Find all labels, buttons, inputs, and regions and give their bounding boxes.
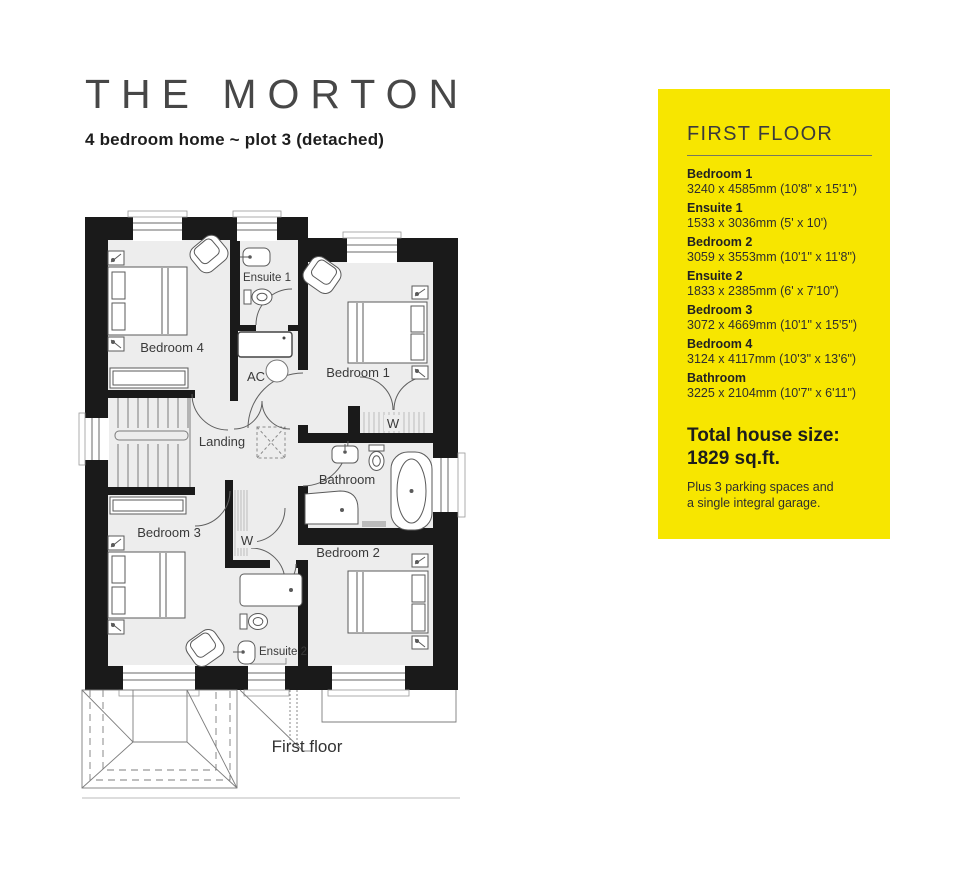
window-ensuite2 bbox=[244, 665, 289, 696]
room-entry-name: Bedroom 4 bbox=[687, 337, 872, 352]
room-entry-name: Ensuite 1 bbox=[687, 201, 872, 216]
label-ensuite1: Ensuite 1 bbox=[243, 272, 291, 284]
room-entry: Ensuite 1 1533 x 3036mm (5' x 10') bbox=[687, 201, 872, 231]
room-entry-dims: 3124 x 4117mm (10'3" x 13'6") bbox=[687, 352, 872, 367]
parking-note: Plus 3 parking spaces and a single integ… bbox=[687, 479, 872, 511]
label-bedroom1: Bedroom 1 bbox=[326, 365, 390, 380]
total-label: Total house size: bbox=[687, 424, 872, 447]
room-entry-dims: 3240 x 4585mm (10'8" x 15'1") bbox=[687, 182, 872, 197]
room-entry-dims: 3059 x 3553mm (10'1" x 11'8") bbox=[687, 250, 872, 265]
water-cylinder bbox=[238, 332, 292, 357]
toilet bbox=[240, 614, 268, 630]
label-ensuite2: Ensuite 2 bbox=[259, 646, 307, 658]
room-entry-name: Bedroom 2 bbox=[687, 235, 872, 250]
room-entry-name: Bedroom 3 bbox=[687, 303, 872, 318]
toilet bbox=[369, 445, 384, 471]
room-dimension-list: Bedroom 1 3240 x 4585mm (10'8" x 15'1") … bbox=[687, 167, 872, 401]
window-bedroom4 bbox=[128, 211, 187, 241]
page-header: THE MORTON 4 bedroom home ~ plot 3 (deta… bbox=[85, 70, 469, 150]
plan-caption: First floor bbox=[272, 737, 343, 756]
panel-heading: FIRST FLOOR bbox=[687, 123, 872, 146]
room-entry: Bedroom 1 3240 x 4585mm (10'8" x 15'1") bbox=[687, 167, 872, 197]
info-panel: FIRST FLOOR Bedroom 1 3240 x 4585mm (10'… bbox=[658, 89, 890, 539]
label-bedroom4: Bedroom 4 bbox=[140, 340, 204, 355]
parking-note-line1: Plus 3 parking spaces and bbox=[687, 479, 872, 495]
room-entry-name: Ensuite 2 bbox=[687, 269, 872, 284]
label-bathroom: Bathroom bbox=[319, 472, 375, 487]
room-entry-dims: 3225 x 2104mm (10'7" x 6'11") bbox=[687, 386, 872, 401]
window-bathroom bbox=[432, 453, 465, 517]
window-ensuite1 bbox=[233, 211, 281, 241]
parking-note-line2: a single integral garage. bbox=[687, 495, 872, 511]
radiator bbox=[362, 521, 386, 527]
room-entry-dims: 3072 x 4669mm (10'1" x 15'5") bbox=[687, 318, 872, 333]
room-entry: Bathroom 3225 x 2104mm (10'7" x 6'11") bbox=[687, 371, 872, 401]
total-house-size: Total house size: 1829 sq.ft. bbox=[687, 424, 872, 470]
room-entry: Ensuite 2 1833 x 2385mm (6' x 7'10") bbox=[687, 269, 872, 299]
total-value: 1829 sq.ft. bbox=[687, 447, 872, 470]
room-entry-name: Bedroom 1 bbox=[687, 167, 872, 182]
tank-circle bbox=[266, 360, 288, 382]
panel-divider bbox=[687, 155, 872, 156]
page-title: THE MORTON bbox=[85, 70, 469, 118]
shower bbox=[305, 491, 358, 524]
label-landing: Landing bbox=[199, 434, 245, 449]
floor-plan: W W bbox=[55, 190, 475, 825]
floor-plan-svg: W W bbox=[55, 190, 475, 820]
label-ac: AC bbox=[247, 369, 265, 384]
toilet bbox=[244, 289, 272, 305]
room-entry-dims: 1533 x 3036mm (5' x 10') bbox=[687, 216, 872, 231]
window-bedroom2 bbox=[328, 665, 409, 696]
wardrobe1-label: W bbox=[387, 416, 400, 431]
bathtub bbox=[391, 452, 432, 530]
room-entry: Bedroom 4 3124 x 4117mm (10'3" x 13'6") bbox=[687, 337, 872, 367]
room-entry: Bedroom 3 3072 x 4669mm (10'1" x 15'5") bbox=[687, 303, 872, 333]
window-bedroom1 bbox=[343, 232, 401, 263]
label-bedroom3: Bedroom 3 bbox=[137, 525, 201, 540]
room-entry: Bedroom 2 3059 x 3553mm (10'1" x 11'8") bbox=[687, 235, 872, 265]
wardrobe2-label: W bbox=[241, 533, 254, 548]
label-bedroom2: Bedroom 2 bbox=[316, 545, 380, 560]
page-subtitle: 4 bedroom home ~ plot 3 (detached) bbox=[85, 130, 469, 150]
window-landing bbox=[79, 413, 109, 465]
room-entry-dims: 1833 x 2385mm (6' x 7'10") bbox=[687, 284, 872, 299]
room-entry-name: Bathroom bbox=[687, 371, 872, 386]
shower bbox=[240, 574, 302, 606]
